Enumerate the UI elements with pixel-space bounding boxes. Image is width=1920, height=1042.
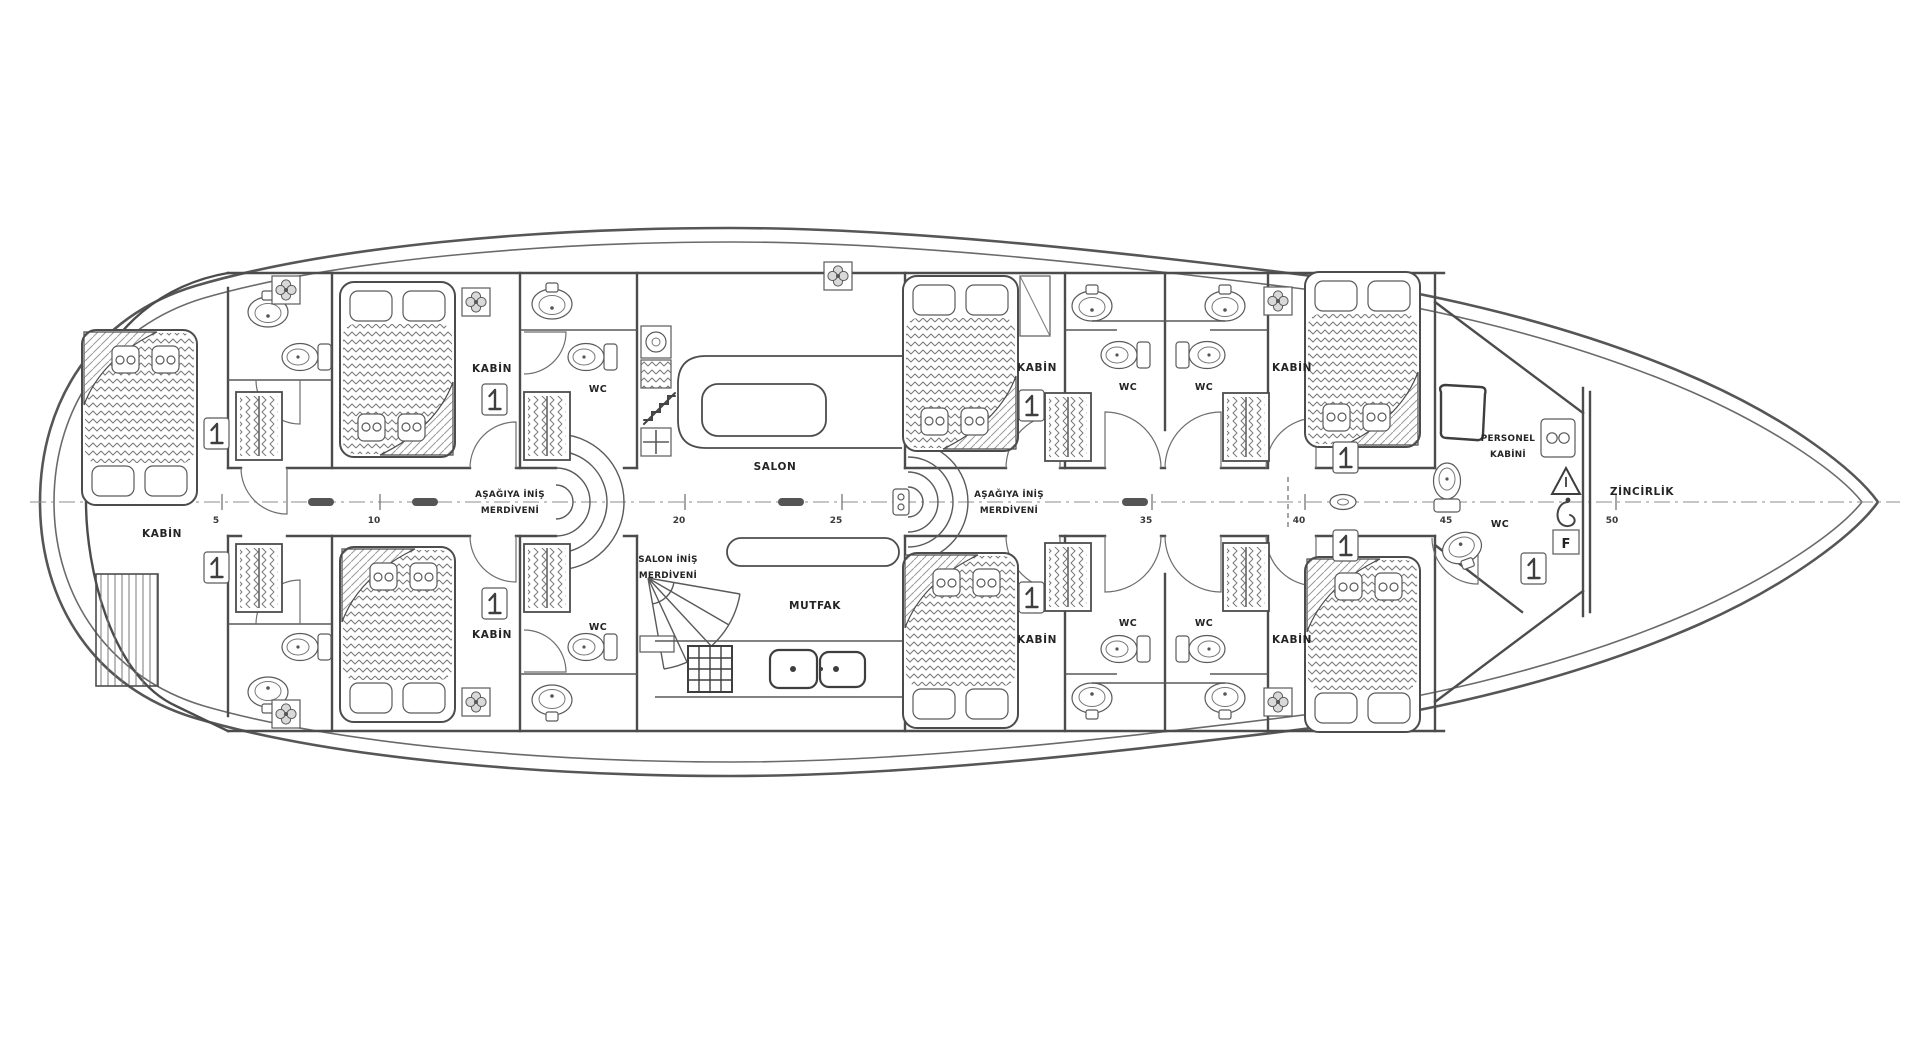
vent-icon bbox=[1264, 688, 1292, 716]
cabin-label: KABİN bbox=[1272, 632, 1312, 646]
basin bbox=[1438, 527, 1488, 575]
salon-stairs-line1: SALON İNİŞ bbox=[638, 554, 698, 565]
double-bed bbox=[1305, 272, 1420, 447]
fixture-icon bbox=[1333, 442, 1358, 473]
toilet bbox=[282, 344, 331, 371]
scale-mark: 50 bbox=[1606, 516, 1619, 526]
galley-label: MUTFAK bbox=[789, 600, 841, 612]
warning-triangle-icon bbox=[1552, 468, 1580, 494]
salon-label: SALON bbox=[754, 461, 797, 473]
salon-table bbox=[702, 384, 826, 436]
wc-label: WC bbox=[589, 384, 607, 395]
toilet bbox=[1101, 636, 1150, 663]
basin bbox=[1205, 285, 1245, 321]
wardrobe bbox=[1045, 543, 1091, 611]
vent-icon bbox=[272, 700, 300, 728]
cabin-label: KABİN bbox=[472, 361, 512, 375]
fixture-icon bbox=[1521, 553, 1546, 584]
scale-mark: 10 bbox=[368, 516, 381, 526]
toilet bbox=[1101, 342, 1150, 369]
vent-icon bbox=[462, 288, 490, 316]
wc-label: WC bbox=[1491, 519, 1509, 530]
toilet bbox=[1176, 636, 1225, 663]
fixture-icon bbox=[482, 588, 507, 619]
cabin-label-stern: KABİN bbox=[142, 526, 182, 540]
wc-label: WC bbox=[1195, 382, 1213, 393]
scale-mark: 45 bbox=[1440, 516, 1453, 526]
double-bed bbox=[340, 547, 455, 722]
vent-icon bbox=[462, 688, 490, 716]
wc-label: WC bbox=[589, 622, 607, 633]
fixture-icon bbox=[1019, 390, 1044, 421]
cabin-label: KABİN bbox=[1017, 632, 1057, 646]
chain-locker-label: ZİNCİRLİK bbox=[1610, 484, 1674, 498]
fixture-icon bbox=[204, 552, 229, 583]
deck-plan-page: 5 10 20 25 35 40 45 50 bbox=[0, 0, 1920, 1042]
wc-label: WC bbox=[1119, 618, 1137, 629]
deck-plan-drawing: 5 10 20 25 35 40 45 50 bbox=[0, 0, 1920, 1042]
salon-stairs-line2: MERDİVENİ bbox=[639, 570, 697, 581]
scale-numbers: 5 10 20 25 35 40 45 50 bbox=[213, 516, 1618, 526]
scale-mark: 35 bbox=[1140, 516, 1153, 526]
double-bed bbox=[903, 553, 1018, 728]
toilet bbox=[568, 634, 617, 661]
dresser bbox=[96, 574, 158, 686]
locker bbox=[641, 360, 671, 388]
wardrobe bbox=[236, 544, 282, 612]
double-bed bbox=[340, 282, 455, 457]
vent-icon bbox=[1264, 287, 1292, 315]
salon bbox=[678, 262, 902, 448]
double-bed bbox=[1305, 557, 1420, 732]
double-bed bbox=[903, 276, 1018, 451]
double-bed bbox=[82, 330, 197, 505]
fire-box: F bbox=[1553, 530, 1579, 554]
cabin-label: KABİN bbox=[1017, 360, 1057, 374]
toilet bbox=[1434, 463, 1461, 512]
hatch-icon bbox=[641, 428, 671, 456]
scale-mark: 25 bbox=[830, 516, 843, 526]
crew-locker bbox=[1541, 419, 1575, 457]
fixture-icon bbox=[204, 418, 229, 449]
toilet bbox=[568, 344, 617, 371]
scale-mark: 5 bbox=[213, 516, 219, 526]
fixture-icon bbox=[1333, 530, 1358, 561]
crew-cabin-label: PERSONEL KABİNİ bbox=[1481, 434, 1536, 460]
stairs-down-line1: AŞAĞIYA İNİŞ bbox=[974, 488, 1044, 500]
basin bbox=[1072, 683, 1112, 719]
basin bbox=[1205, 683, 1245, 719]
wc-label: WC bbox=[1119, 382, 1137, 393]
stern-cabin bbox=[82, 330, 229, 686]
steps-icon bbox=[644, 393, 675, 424]
stairs-down-line2: MERDİVENİ bbox=[481, 505, 539, 516]
fire-box-label: F bbox=[1562, 537, 1571, 552]
basin bbox=[1072, 285, 1112, 321]
stairs-down-line1: AŞAĞIYA İNİŞ bbox=[475, 488, 545, 500]
wardrobe bbox=[236, 392, 282, 460]
salon-stairs-label: SALON İNİŞ MERDİVENİ bbox=[638, 554, 698, 581]
crew-cabin-line1: PERSONEL bbox=[1481, 434, 1536, 444]
cabin-label: KABİN bbox=[1272, 360, 1312, 374]
crew-cabin-line2: KABİNİ bbox=[1490, 449, 1526, 460]
scale-mark: 20 bbox=[673, 516, 686, 526]
appliance-icon bbox=[641, 326, 671, 358]
crew-bed bbox=[1440, 385, 1485, 440]
vent-icon bbox=[272, 276, 300, 304]
stairs-down-line2: MERDİVENİ bbox=[980, 505, 1038, 516]
bow-section: F bbox=[1434, 385, 1581, 584]
wardrobe bbox=[524, 392, 570, 460]
wardrobe bbox=[1045, 393, 1091, 461]
galley-counter bbox=[727, 538, 899, 566]
wardrobe bbox=[1223, 543, 1269, 611]
basin bbox=[532, 685, 572, 721]
stove bbox=[688, 646, 732, 692]
toilet bbox=[1176, 342, 1225, 369]
vent-icon bbox=[824, 262, 852, 290]
entry-cabinets bbox=[641, 326, 675, 456]
toilet bbox=[282, 634, 331, 661]
double-sink bbox=[770, 650, 865, 688]
scale-mark: 40 bbox=[1293, 516, 1306, 526]
fixture-icon bbox=[1019, 582, 1044, 613]
wardrobe bbox=[524, 544, 570, 612]
wardrobe bbox=[1223, 393, 1269, 461]
basin bbox=[532, 283, 572, 319]
wc-label: WC bbox=[1195, 618, 1213, 629]
cabin-label: KABİN bbox=[472, 627, 512, 641]
